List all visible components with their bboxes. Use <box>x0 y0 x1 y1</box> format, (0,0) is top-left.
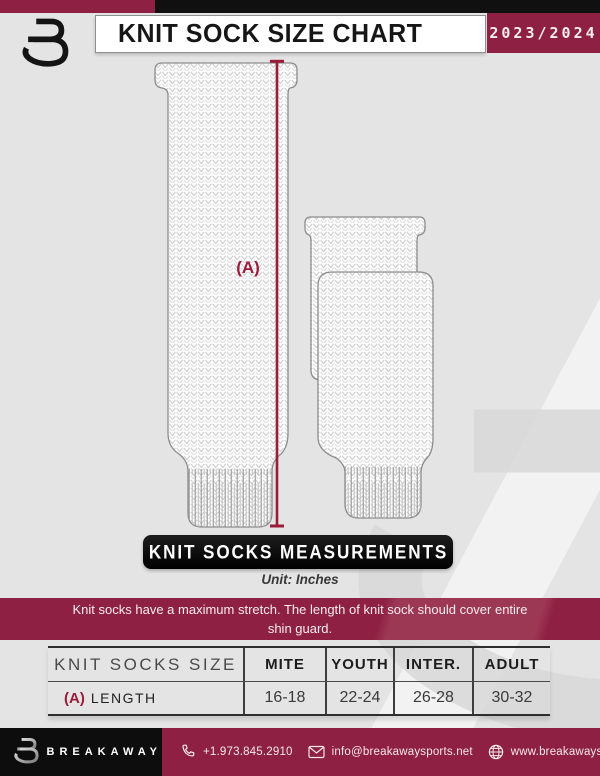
column-header-mite: MITE <box>243 648 325 681</box>
page-title-bar: KNIT SOCK SIZE CHART <box>95 15 486 53</box>
length-value-adult: 30-32 <box>472 682 550 714</box>
phone-icon <box>180 744 196 760</box>
footer-email-text: info@breakawaysports.net <box>332 746 473 758</box>
length-value-mite: 16-18 <box>243 682 325 714</box>
breakaway-footer-logo-icon <box>13 735 41 769</box>
size-table: KNIT SOCKS SIZE MITE YOUTH INTER. ADULT … <box>48 646 550 716</box>
season-badge: 2023/2024 <box>487 13 600 53</box>
table-row-length: (A) LENGTH 16-18 22-24 26-28 30-32 <box>48 681 550 714</box>
length-label: LENGTH <box>91 690 157 706</box>
globe-icon <box>488 744 504 760</box>
footer: BREAKAWAY +1.973.845.2910 info@breakaway… <box>0 728 600 776</box>
top-accent-strip-black <box>155 0 600 13</box>
footer-email[interactable]: info@breakawaysports.net <box>308 745 473 759</box>
footer-brand-name: BREAKAWAY <box>47 746 163 758</box>
footer-contacts: +1.973.845.2910 info@breakawaysports.net <box>180 728 600 776</box>
dimension-a-label: (A) <box>236 258 260 277</box>
column-header-adult: ADULT <box>472 648 550 681</box>
column-header-youth: YOUTH <box>325 648 393 681</box>
stretch-notice-text: Knit socks have a maximum stretch. The l… <box>69 600 531 639</box>
column-header-inter: INTER. <box>393 648 472 681</box>
length-value-youth: 22-24 <box>325 682 393 714</box>
large-sock-rib <box>188 469 272 527</box>
page-title: KNIT SOCK SIZE CHART <box>96 19 422 49</box>
measurements-banner-text: KNIT SOCKS MEASUREMENTS <box>148 541 447 564</box>
season-label: 2023/2024 <box>489 24 597 42</box>
footer-website-text: www.breakawaysports.net <box>511 746 600 758</box>
small-sock-rib <box>345 467 421 518</box>
measurements-banner: KNIT SOCKS MEASUREMENTS <box>143 535 453 569</box>
footer-phone-text: +1.973.845.2910 <box>203 746 293 758</box>
footer-brand-panel: BREAKAWAY <box>0 728 162 776</box>
breakaway-logo-icon <box>20 15 72 75</box>
unit-note: Unit: Inches <box>0 572 600 587</box>
top-accent-strip-maroon <box>0 0 155 13</box>
length-row-label-cell: (A) LENGTH <box>48 682 243 714</box>
dimension-a-ref: (A) <box>64 690 85 707</box>
knit-sock-illustration: (A) <box>140 55 480 535</box>
size-table-header-row: KNIT SOCKS SIZE MITE YOUTH INTER. ADULT <box>48 648 550 681</box>
envelope-icon <box>308 745 325 759</box>
size-table-title: KNIT SOCKS SIZE <box>54 655 237 675</box>
footer-phone[interactable]: +1.973.845.2910 <box>180 744 293 760</box>
size-table-title-cell: KNIT SOCKS SIZE <box>48 648 243 681</box>
stretch-notice-banner: Knit socks have a maximum stretch. The l… <box>0 598 600 640</box>
small-sock <box>318 272 433 518</box>
footer-website[interactable]: www.breakawaysports.net <box>488 744 600 760</box>
knit-sock-size-chart-page: KNIT SOCK SIZE CHART 2023/2024 <box>0 0 600 776</box>
length-value-inter: 26-28 <box>393 682 472 714</box>
